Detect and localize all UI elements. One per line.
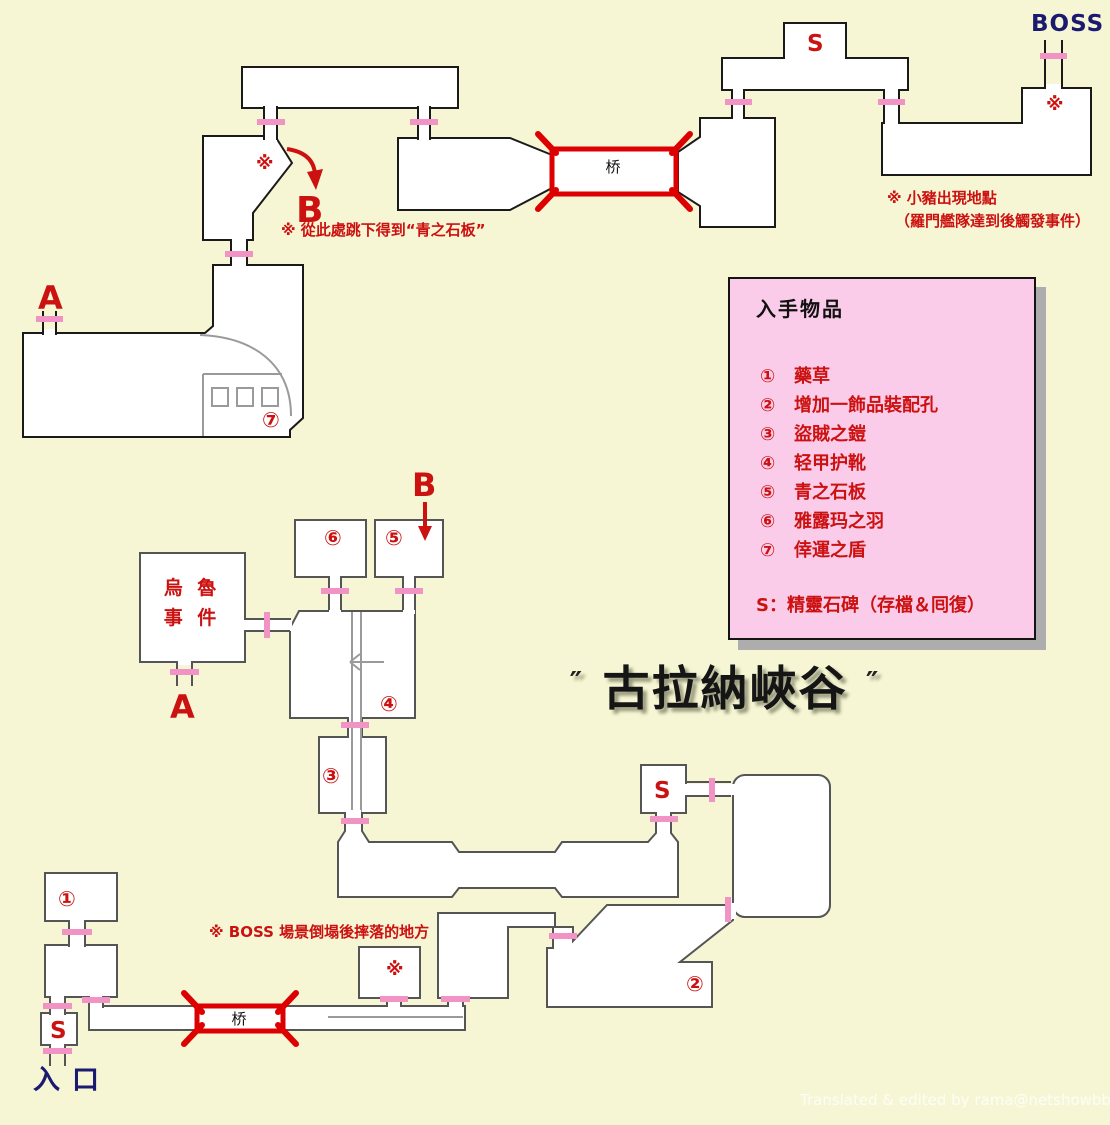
door-marker [341, 818, 369, 824]
door-marker [395, 588, 423, 594]
pig-note-line1: ※ 小豬出現地點 [887, 187, 997, 208]
title-text: 古拉納峽谷 [603, 662, 848, 717]
passage [44, 329, 55, 337]
door-marker [62, 929, 92, 935]
legend-item-num: ⑦ [760, 536, 794, 565]
legend-item-num: ⑤ [760, 478, 794, 507]
item-marker-1: ① [58, 887, 76, 911]
room-bridge-west [398, 138, 552, 210]
legend-item-list: ①藥草 ②增加一飾品裝配孔 ③盜賊之鎧 ④轻甲护靴 ⑤青之石板 ⑥雅露玛之羽 ⑦… [760, 362, 1034, 565]
game-map-page: { "title": { "quote_left": "\u2033", "te… [0, 0, 1110, 1125]
uru-event-label: 烏 魯 [164, 576, 221, 599]
pillar [212, 388, 228, 406]
legend-item-num: ③ [760, 420, 794, 449]
title-quote-right: ″ [866, 665, 881, 698]
door-marker [549, 933, 577, 939]
passage [1046, 84, 1061, 91]
item-marker-2: ② [686, 972, 704, 996]
save-point-label: S [807, 31, 824, 57]
legend-item-label: 盜賊之鎧 [794, 424, 866, 445]
legend-item-num: ② [760, 391, 794, 420]
door-marker [380, 996, 408, 1002]
passage [178, 659, 191, 665]
door-marker [170, 669, 199, 675]
star-marker: ※ [256, 153, 274, 174]
item-marker-4: ④ [380, 692, 398, 716]
door-marker [410, 119, 438, 125]
legend-item-num: ⑥ [760, 507, 794, 536]
room-middle-south [438, 913, 555, 998]
door-marker [321, 588, 349, 594]
door-marker [43, 1048, 72, 1054]
legend-item: ⑤青之石板 [760, 478, 1034, 507]
door-marker [43, 1003, 72, 1009]
pillar [262, 388, 278, 406]
door-marker [878, 99, 905, 105]
passage [346, 810, 361, 818]
door-marker [341, 722, 369, 728]
legend-item-label: 倖運之盾 [794, 540, 866, 561]
star-marker: ※ [1046, 94, 1064, 115]
room-jump-ledge [203, 136, 292, 240]
door-marker [225, 251, 253, 257]
uru-event-label: 事 件 [164, 606, 221, 629]
star-marker: ※ [386, 959, 404, 980]
legend-item: ④轻甲护靴 [760, 449, 1034, 478]
legend-save-note: S：精靈石碑（存檔＆囘復） [756, 591, 1034, 617]
room-entry-hall [45, 945, 117, 997]
legend-item-num: ① [760, 362, 794, 391]
legend-item-label: 青之石板 [794, 482, 866, 503]
boss-fall-note: ※ BOSS 場景倒塌後摔落的地方 [209, 921, 429, 942]
door-marker [257, 119, 285, 125]
door-marker [1040, 53, 1067, 59]
boss-label: BOSS [1031, 11, 1104, 37]
legend-item: ⑦倖運之盾 [760, 536, 1034, 565]
legend-item: ②增加一飾品裝配孔 [760, 391, 1034, 420]
point-b-label: B [412, 466, 436, 504]
room-a-hall [23, 265, 303, 437]
door-marker [82, 997, 110, 1003]
legend-item-label: 雅露玛之羽 [794, 511, 884, 532]
save-point-label: S [654, 778, 671, 804]
pig-note-line2: （羅門艦隊達到後觸發事件） [895, 210, 1090, 231]
map-bottom-section [41, 765, 830, 1066]
legend-item-label: 藥草 [794, 366, 830, 387]
legend-item: ①藥草 [760, 362, 1034, 391]
legend-title: 入手物品 [756, 293, 1034, 322]
legend-item-num: ④ [760, 449, 794, 478]
door-marker [441, 996, 470, 1002]
door-marker [650, 816, 678, 822]
legend-item: ③盜賊之鎧 [760, 420, 1034, 449]
item-marker-7: ⑦ [262, 408, 280, 432]
room-item1 [45, 873, 117, 921]
save-point-label: S [50, 1018, 67, 1044]
passage [885, 87, 898, 127]
corridor-main [338, 815, 678, 897]
item-marker-5: ⑤ [385, 526, 403, 550]
pillar [237, 388, 253, 406]
entrance-label: 入口 [33, 1065, 111, 1096]
room-round-east [733, 775, 830, 917]
point-a-label: A [170, 688, 195, 726]
item-marker-3: ③ [322, 764, 340, 788]
legend-item: ⑥雅露玛之羽 [760, 507, 1034, 536]
legend-item-label: 轻甲护靴 [794, 453, 866, 474]
jump-note: ※ 從此處跳下得到“青之石板” [281, 219, 486, 240]
item-marker-6: ⑥ [324, 526, 342, 550]
legend-item-label: 增加一飾品裝配孔 [794, 395, 938, 416]
room-item2 [547, 905, 733, 1007]
item-legend-panel: 入手物品 ①藥草 ②增加一飾品裝配孔 ③盜賊之鎧 ④轻甲护靴 ⑤青之石板 ⑥雅露… [728, 277, 1036, 640]
bridge-label: 桥 [605, 158, 620, 176]
point-a-label: A [38, 279, 63, 317]
jump-arrow-head-icon [307, 169, 323, 190]
door-marker [709, 778, 715, 802]
title-quote-left: ″ [570, 665, 585, 698]
door-marker [725, 897, 731, 922]
door-marker [264, 612, 270, 638]
bridge-label: 桥 [231, 1010, 246, 1028]
map-title: ″ 古拉納峽谷 ″ [540, 650, 910, 719]
door-marker [725, 99, 752, 105]
room-top-wide [242, 67, 458, 108]
credit-line: Translated & edited by rama@netshowbbs.c… [800, 1091, 1110, 1109]
